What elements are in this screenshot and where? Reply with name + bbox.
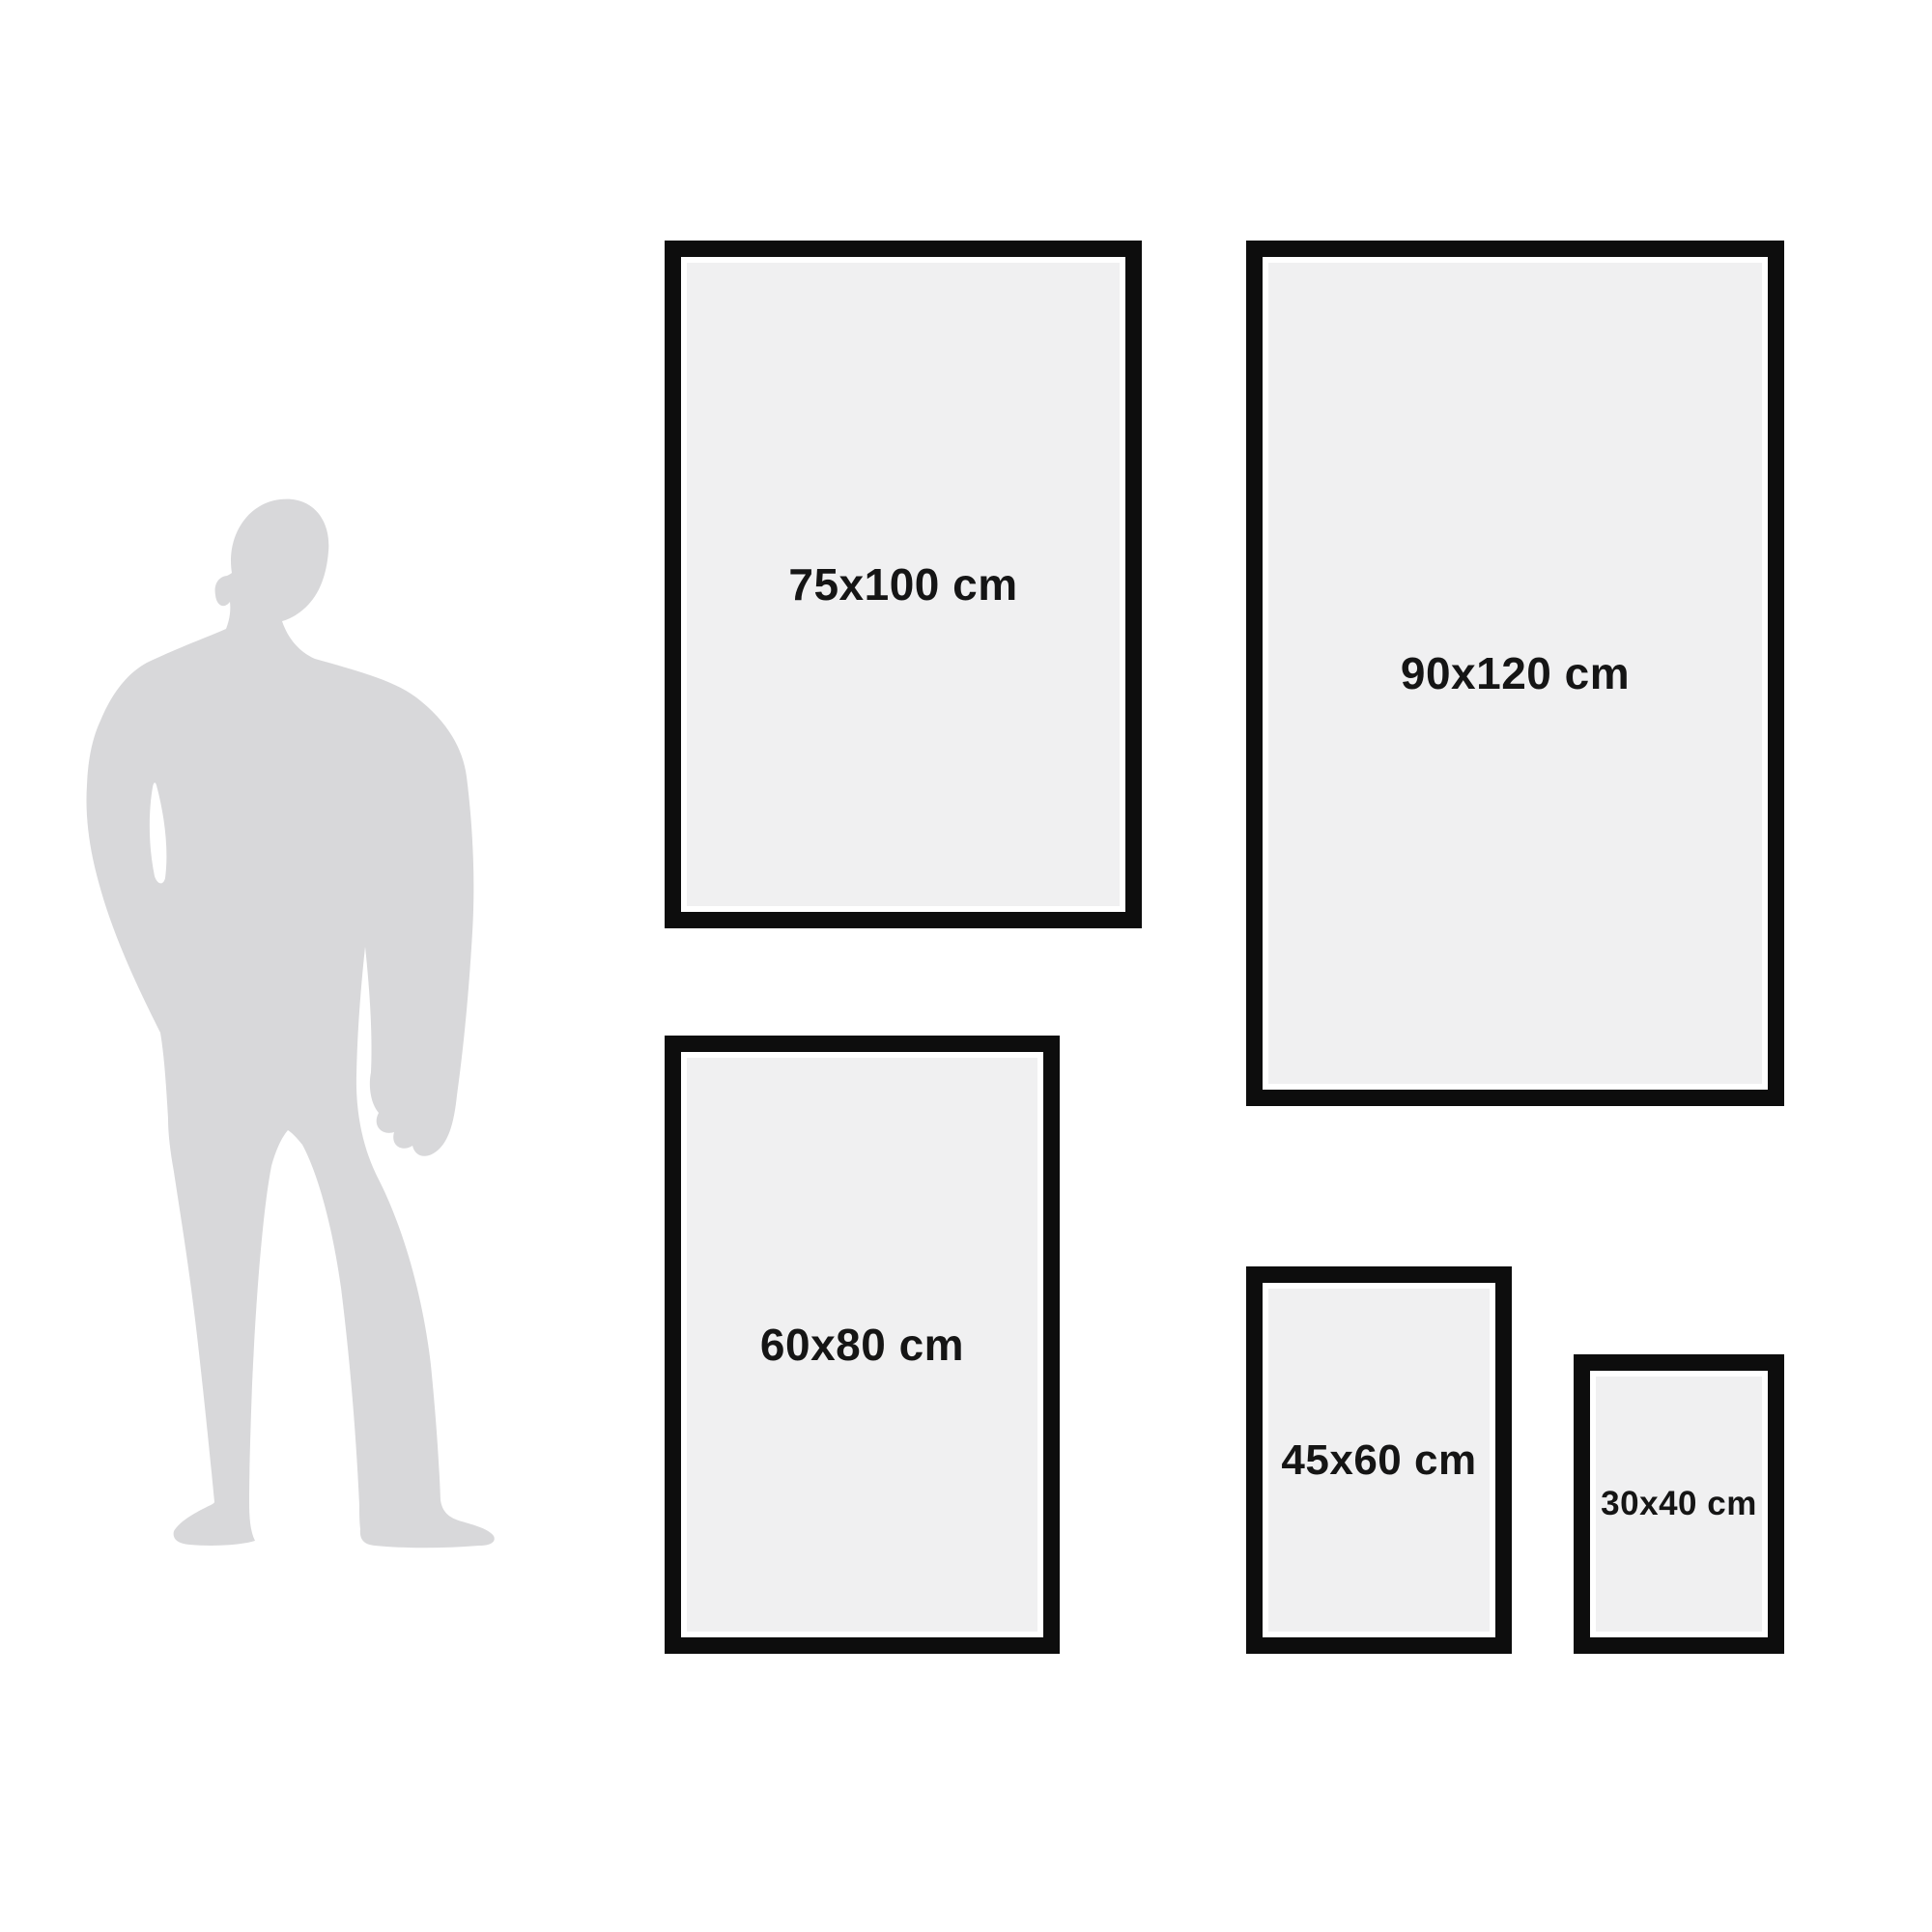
frame-45x60: 45x60 cm <box>1246 1266 1512 1654</box>
frame-90x120: 90x120 cm <box>1246 241 1784 1106</box>
person-silhouette-shape <box>87 499 495 1548</box>
frame-75x100: 75x100 cm <box>665 241 1142 928</box>
size-label-60x80: 60x80 cm <box>760 1319 964 1371</box>
size-label-90x120: 90x120 cm <box>1401 647 1630 699</box>
person-silhouette-icon <box>85 496 500 1548</box>
size-comparison-diagram: 75x100 cm 90x120 cm 60x80 cm 45x60 cm 30… <box>0 0 1932 1932</box>
size-label-30x40: 30x40 cm <box>1601 1485 1757 1523</box>
size-label-45x60: 45x60 cm <box>1281 1436 1476 1485</box>
size-label-75x100: 75x100 cm <box>788 558 1017 611</box>
frame-30x40: 30x40 cm <box>1574 1354 1784 1654</box>
frame-60x80: 60x80 cm <box>665 1036 1060 1654</box>
